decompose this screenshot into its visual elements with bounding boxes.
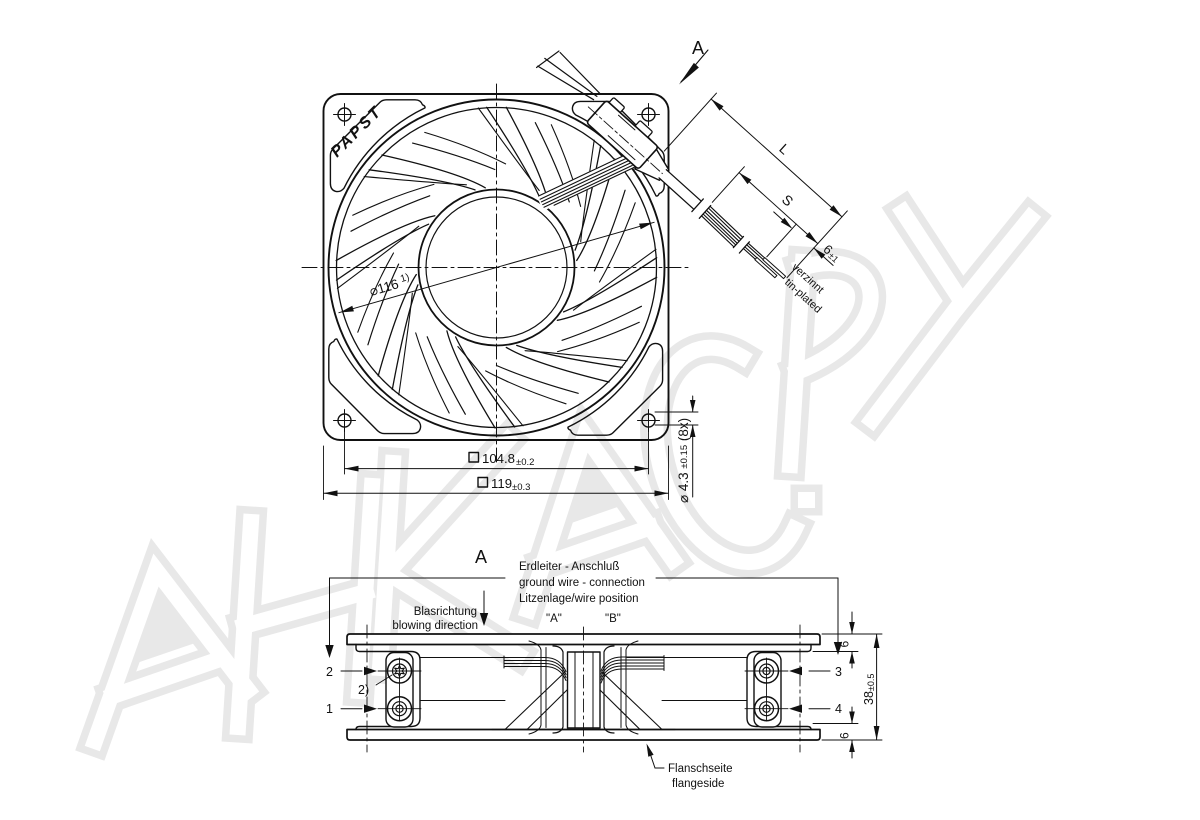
svg-text:Litzenlage/wire position: Litzenlage/wire position (519, 593, 639, 605)
svg-text:Blasrichtung: Blasrichtung (414, 606, 477, 618)
svg-text:blowing direction: blowing direction (392, 620, 478, 632)
svg-text:6: 6 (838, 732, 852, 739)
svg-text:A: A (692, 38, 704, 58)
svg-text:3: 3 (835, 665, 842, 679)
svg-text:ground wire - connection: ground wire - connection (519, 577, 645, 589)
svg-text:Flanschseite: Flanschseite (668, 763, 733, 775)
svg-text:2: 2 (326, 665, 333, 679)
svg-text:±0.3: ±0.3 (512, 482, 530, 493)
svg-text:4: 4 (835, 702, 842, 716)
svg-text:6: 6 (838, 641, 852, 648)
svg-text:119: 119 (491, 476, 512, 491)
svg-text:"B": "B" (605, 613, 621, 625)
svg-text:⌀ 4.3 ±0.15 (8x): ⌀ 4.3 ±0.15 (8x) (676, 418, 691, 503)
svg-text:Erdleiter - Anschluß: Erdleiter - Anschluß (519, 561, 619, 573)
svg-text:A: A (475, 547, 487, 567)
svg-text:2): 2) (358, 683, 369, 697)
svg-text:"A": "A" (546, 613, 562, 625)
svg-text:flangeside: flangeside (672, 778, 724, 790)
svg-text:104.8: 104.8 (482, 451, 515, 466)
svg-text:±0.2: ±0.2 (516, 457, 534, 468)
svg-text:1: 1 (326, 702, 333, 716)
